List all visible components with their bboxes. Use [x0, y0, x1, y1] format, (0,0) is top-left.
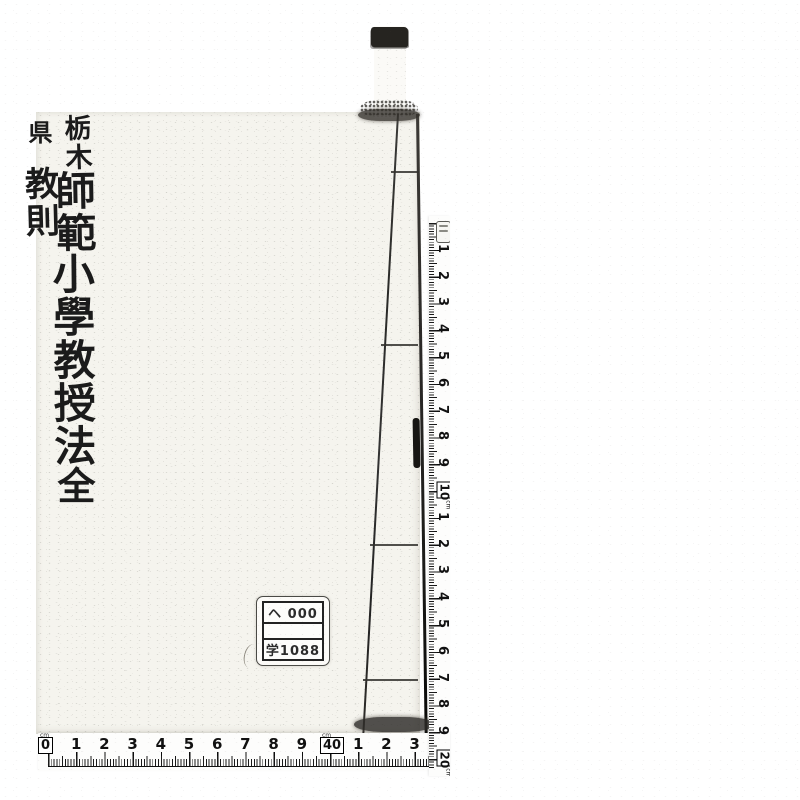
binding-stitch [363, 679, 418, 681]
call-number-label-grid: ヘ 000 学1088 [262, 601, 324, 661]
binding-bottom-smudge [354, 717, 434, 732]
ruler-number: 4 [435, 589, 450, 604]
ruler-number: 40 [320, 737, 344, 754]
call-number-label: ヘ 000 学1088 [256, 596, 330, 666]
call-number-class: ヘ 000 [264, 603, 322, 622]
ruler-number: 7 [435, 670, 450, 685]
call-number-accession: 学1088 [264, 638, 322, 659]
ruler-number: 10cm [437, 482, 451, 499]
ruler-number: 9 [435, 455, 450, 470]
ruler-number: 1 [348, 735, 368, 753]
ruler-number: 8 [435, 696, 450, 711]
ruler-number: 1 [66, 735, 86, 753]
ruler-number: 6 [435, 375, 450, 390]
binding-ink-blotch [413, 418, 421, 468]
ruler-number: 20cm [437, 750, 451, 767]
binding-stitch [381, 344, 418, 346]
ruler-unit-label: cm [445, 768, 451, 776]
ruler-number: 4 [151, 735, 171, 753]
ruler-number: 2 [435, 536, 450, 551]
ruler-number: 3 [435, 294, 450, 309]
binding-stitch [370, 544, 418, 546]
ruler-number: 2 [376, 735, 396, 753]
ruler-number: 3 [123, 735, 143, 753]
ruler-number: 3 [405, 735, 425, 753]
ruler-number: 7 [235, 735, 255, 753]
call-number-blank [264, 622, 322, 638]
ruler-number: 1 [435, 509, 450, 524]
ruler-number: 9 [292, 735, 312, 753]
ruler-vertical-cm: 12345678910cm12345678920cm [429, 216, 450, 776]
cover-title-main: 小學教授法 [49, 252, 93, 467]
ruler-number: 5 [179, 735, 199, 753]
ruler-horizontal-cm: cm0123456789cm40123 [38, 733, 450, 771]
ruler-unit-label: cm [445, 500, 451, 509]
cover-title-rules: 教則 [21, 166, 57, 241]
ruler-number: 2 [94, 735, 114, 753]
ruler-number: 3 [435, 562, 450, 577]
cover-volume-mark: 全 [54, 466, 92, 504]
cover-title-prefecture-part1: 栃木 [61, 114, 90, 173]
ruler-number: 6 [207, 735, 227, 753]
ruler-number: 4 [435, 321, 450, 336]
ruler-number: 7 [435, 402, 450, 417]
ruler-number: 8 [264, 735, 284, 753]
ruler-maker-stamp [436, 221, 450, 243]
binding-stitch [391, 171, 419, 173]
ruler-number: 6 [435, 643, 450, 658]
ruler-number: 5 [435, 348, 450, 363]
ruler-number: 8 [435, 428, 450, 443]
ruler-number: 9 [435, 723, 450, 738]
ruler-number: 1 [435, 241, 450, 256]
cover-title-prefecture-part2: 県 [26, 120, 50, 144]
ruler-number: 2 [435, 268, 450, 283]
ruler-horizontal-ticks [48, 752, 444, 767]
protruding-strip-dark-cap [371, 27, 408, 47]
ruler-number: 5 [435, 616, 450, 631]
ruler-number: 0 [38, 737, 53, 754]
binding-top-smudge [358, 109, 420, 121]
